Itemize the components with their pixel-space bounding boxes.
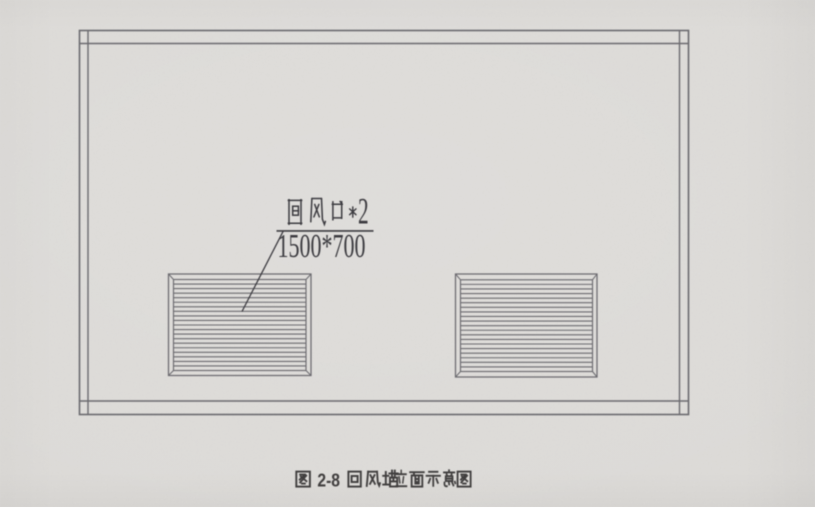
svg-text:2-8: 2-8 [317,469,340,490]
svg-text:2: 2 [358,192,369,232]
svg-text:1500*700: 1500*700 [278,228,366,265]
